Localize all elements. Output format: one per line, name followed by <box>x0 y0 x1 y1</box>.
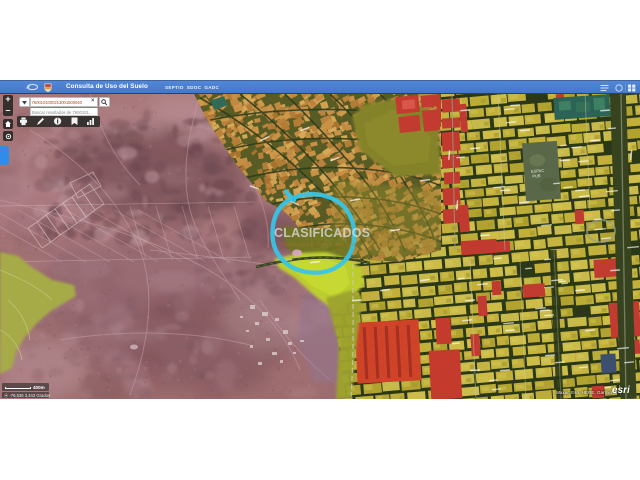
svg-text:PUB: PUB <box>532 173 541 179</box>
